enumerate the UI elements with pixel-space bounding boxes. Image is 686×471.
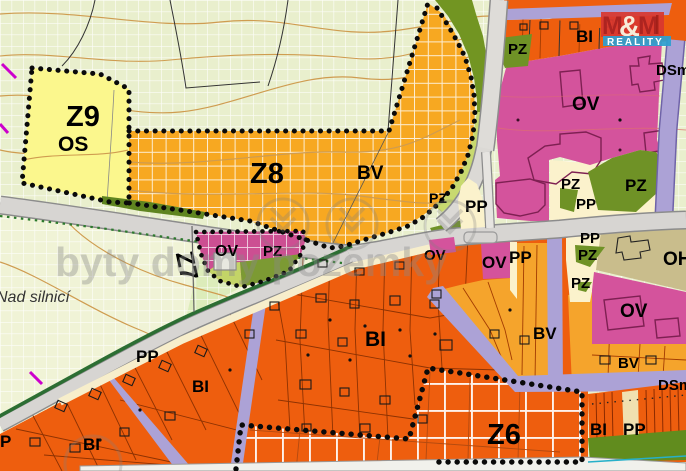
svg-text:PP: PP: [465, 197, 488, 216]
svg-text:BV: BV: [533, 324, 557, 343]
svg-text:PZ: PZ: [561, 176, 580, 193]
svg-text:OV: OV: [572, 94, 600, 115]
svg-text:Nad silnicí: Nad silnicí: [0, 289, 71, 306]
svg-text:BI: BI: [192, 377, 209, 396]
svg-text:BI: BI: [576, 27, 593, 46]
svg-text:Z9: Z9: [66, 101, 100, 133]
svg-text:OS: OS: [58, 133, 88, 156]
svg-text:DSm: DSm: [658, 377, 686, 394]
svg-text:REALITY: REALITY: [607, 37, 664, 48]
svg-text:PZ: PZ: [578, 247, 597, 264]
svg-text:Z8: Z8: [250, 158, 284, 190]
svg-text:P: P: [0, 432, 11, 451]
svg-text:PZ: PZ: [625, 176, 647, 195]
svg-text:PP: PP: [576, 196, 596, 213]
svg-text:BV: BV: [618, 355, 639, 372]
svg-text:M: M: [638, 12, 659, 40]
svg-text:DSm: DSm: [656, 62, 686, 79]
svg-text:BV: BV: [357, 163, 384, 184]
svg-text:PP: PP: [580, 230, 600, 247]
svg-text:PP: PP: [509, 248, 532, 267]
svg-text:PP: PP: [136, 347, 159, 366]
svg-text:PZ: PZ: [508, 41, 527, 58]
svg-text:OV: OV: [620, 301, 648, 322]
svg-text:OV: OV: [482, 253, 507, 272]
svg-text:BI: BI: [365, 328, 386, 351]
svg-text:PP: PP: [623, 420, 646, 439]
svg-text:Z6: Z6: [487, 419, 521, 451]
svg-text:BI: BI: [590, 420, 607, 439]
svg-text:byty domy pozemky: byty domy pozemky: [55, 239, 447, 285]
svg-text:OH: OH: [663, 249, 686, 270]
svg-text:PZ: PZ: [571, 275, 590, 292]
